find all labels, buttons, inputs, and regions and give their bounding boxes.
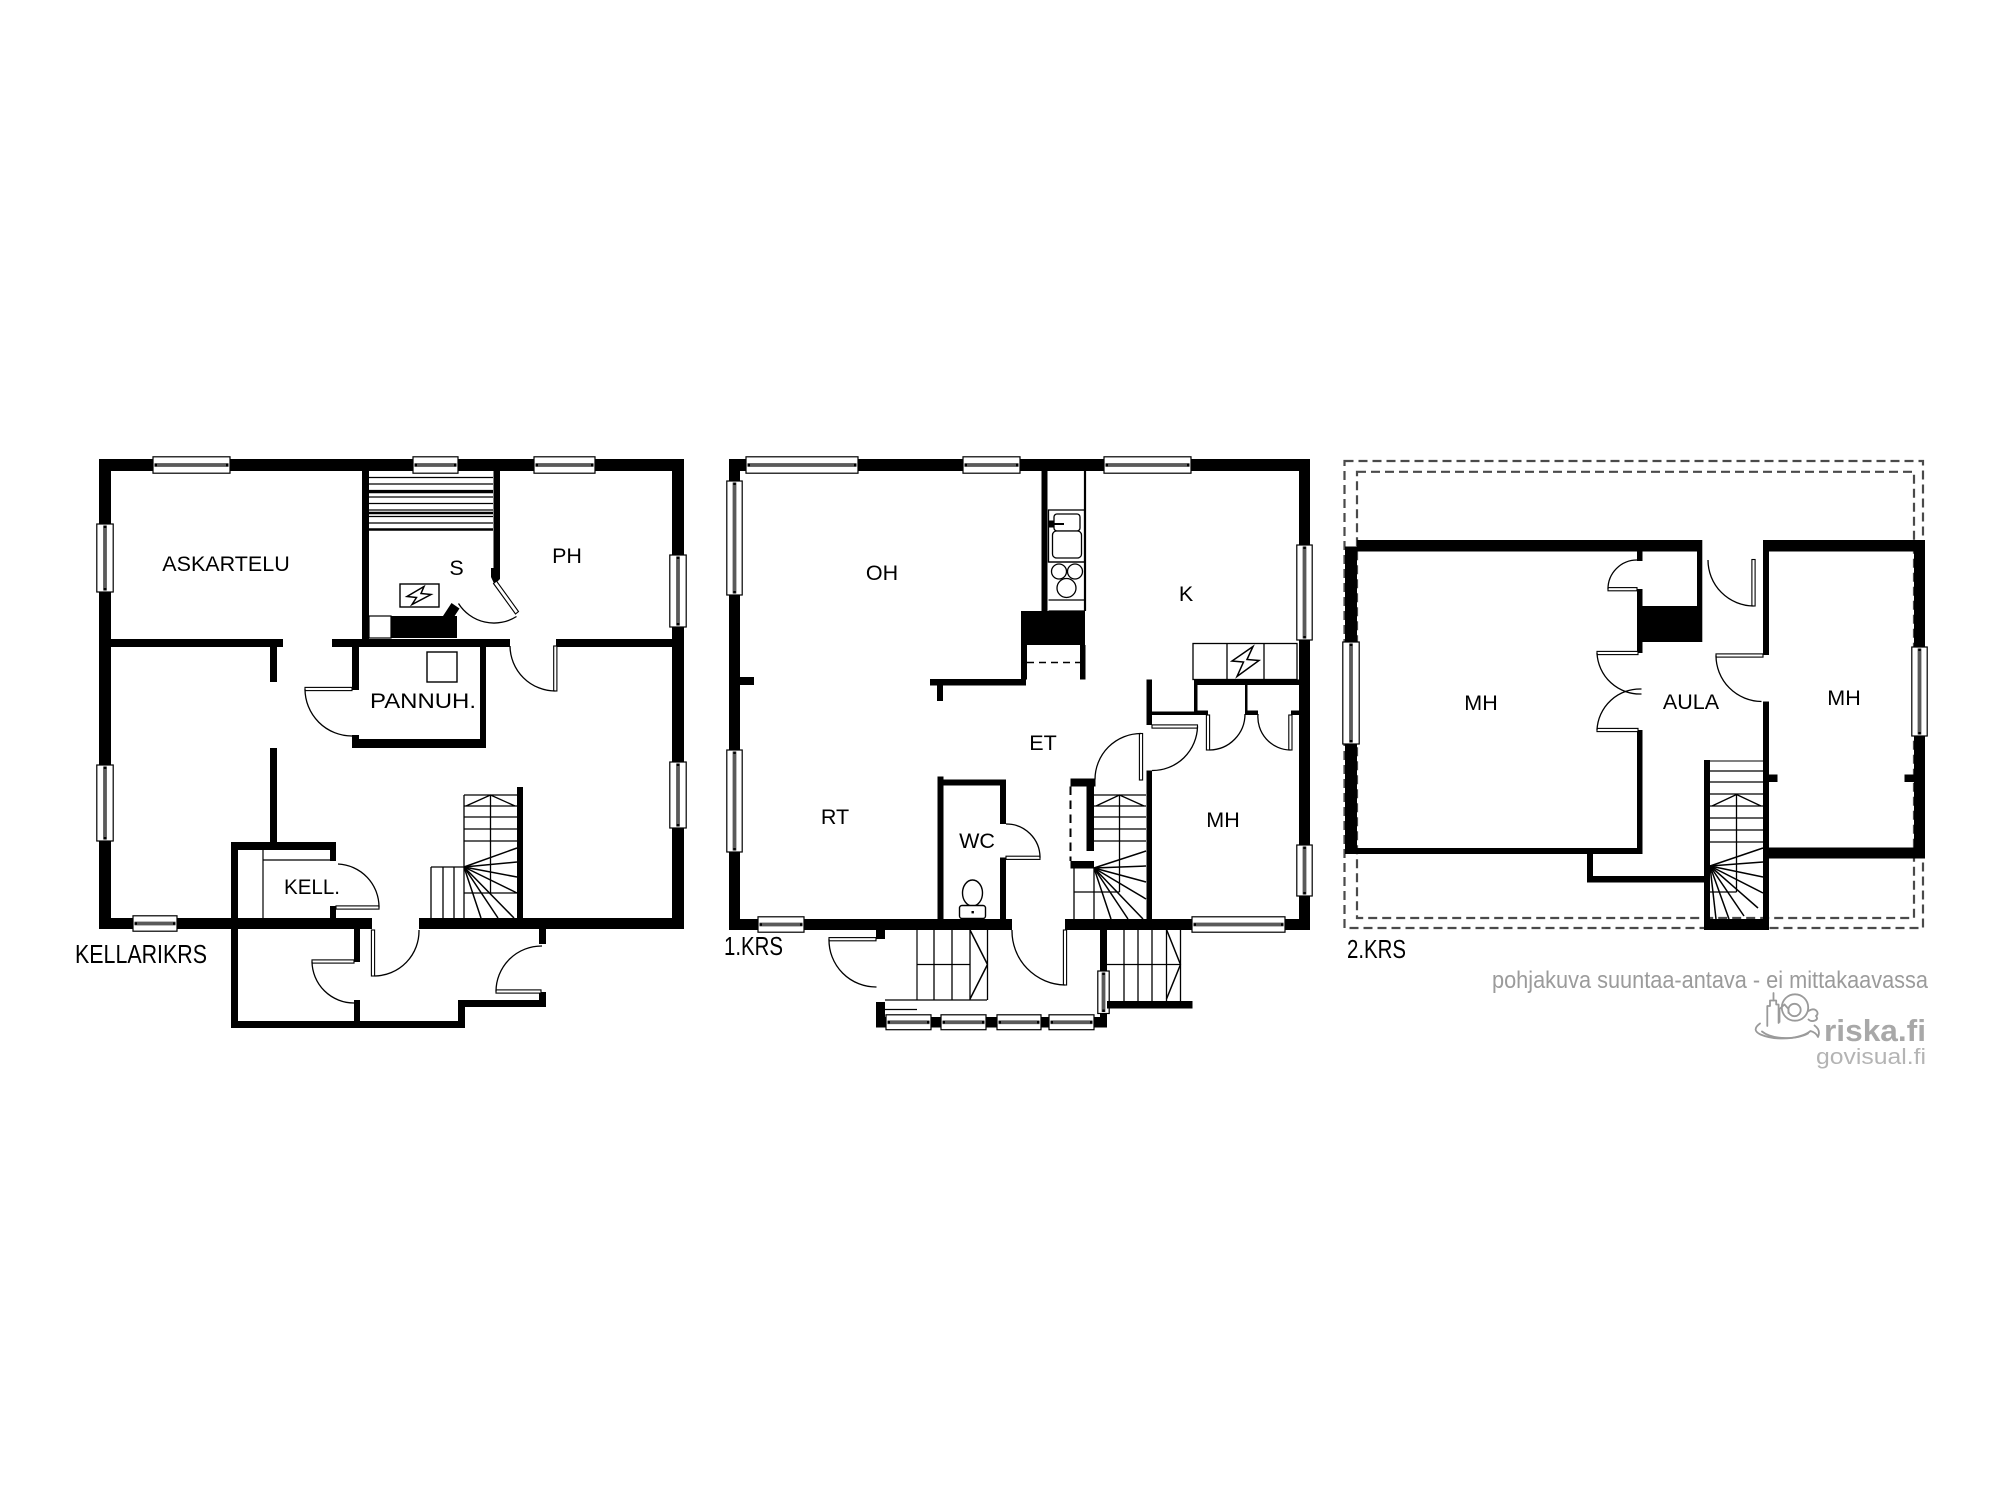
svg-text:ET: ET [1029, 731, 1056, 755]
svg-text:WC: WC [959, 829, 995, 853]
svg-text:ASKARTELU: ASKARTELU [162, 552, 289, 576]
svg-text:PH: PH [552, 544, 582, 568]
svg-text:PANNUH.: PANNUH. [370, 689, 476, 713]
svg-text:riska.fi: riska.fi [1824, 1013, 1926, 1048]
svg-text:KELLARIKRS: KELLARIKRS [75, 939, 207, 969]
svg-text:AULA: AULA [1663, 690, 1720, 714]
svg-text:OH: OH [866, 561, 898, 585]
svg-text:KELL.: KELL. [284, 875, 340, 899]
svg-text:MH: MH [1206, 808, 1239, 832]
svg-text:1.KRS: 1.KRS [724, 931, 783, 961]
svg-text:MH: MH [1464, 691, 1497, 715]
svg-text:S: S [449, 556, 463, 580]
svg-text:K: K [1179, 582, 1194, 606]
svg-text:govisual.fi: govisual.fi [1816, 1044, 1926, 1069]
svg-text:pohjakuva suuntaa-antava - ei: pohjakuva suuntaa-antava - ei mittakaava… [1492, 967, 1929, 994]
svg-text:RT: RT [821, 805, 849, 829]
svg-text:2.KRS: 2.KRS [1347, 934, 1406, 964]
svg-text:MH: MH [1827, 686, 1860, 710]
